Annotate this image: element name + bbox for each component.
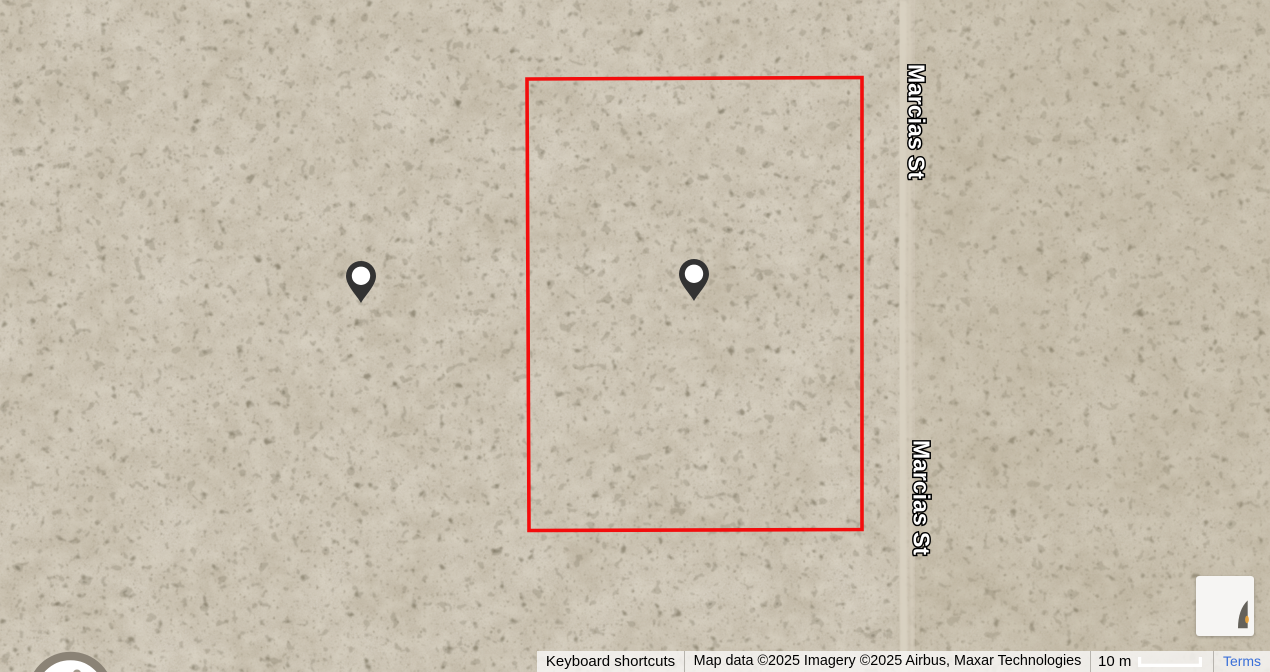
svg-text:Marcias St: Marcias St — [909, 440, 935, 555]
svg-text:Marcias St: Marcias St — [904, 64, 930, 179]
